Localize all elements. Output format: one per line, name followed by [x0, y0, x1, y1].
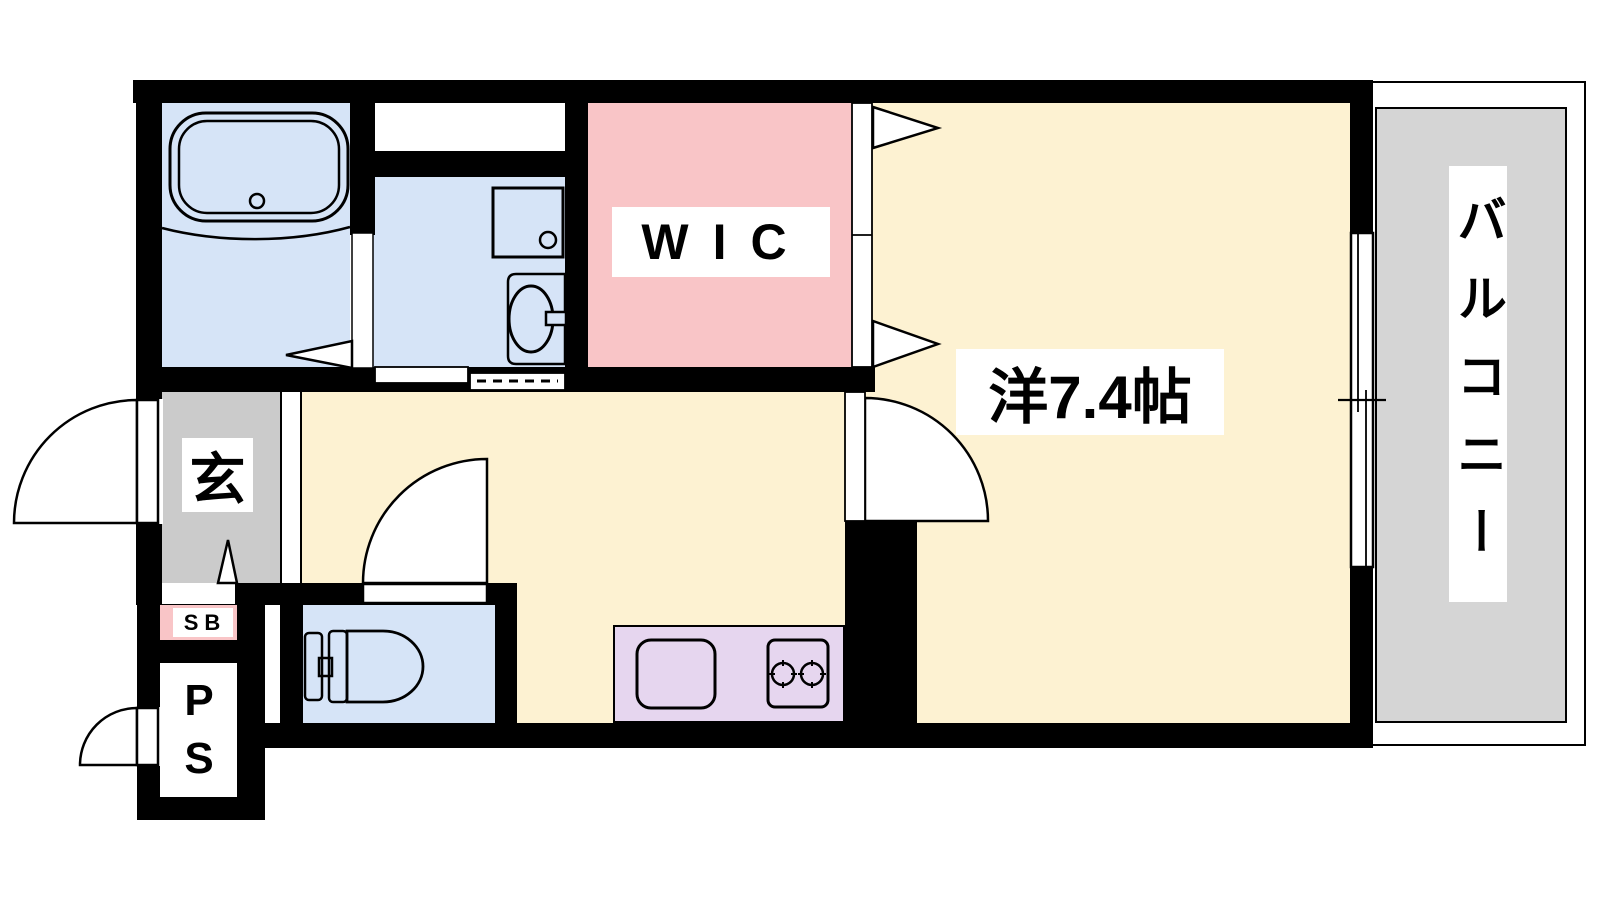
- vanity-faucet: [546, 312, 566, 325]
- balcony-label-text: バルコニー: [1450, 194, 1506, 584]
- washroom-sliding-door: [375, 367, 565, 390]
- bathroom-folding-door: [286, 341, 352, 368]
- entrance-label: 玄: [182, 438, 253, 512]
- toilet: [305, 631, 423, 702]
- washing-machine-pan: [493, 188, 563, 257]
- room-door-leaf: [845, 392, 865, 521]
- entrance-door-swing-arc: [14, 400, 137, 523]
- wic-folding-doors: [852, 103, 938, 367]
- ps-door-swing-arc: [80, 708, 137, 765]
- wic-door-triangle-top: [873, 107, 938, 148]
- balcony-window: [1338, 233, 1386, 567]
- main-room-label-text: 洋7.4帖: [988, 349, 1191, 436]
- balcony-label: バルコニー: [1449, 166, 1507, 602]
- toilet-door-leaf: [363, 584, 487, 603]
- bathtub: [162, 113, 350, 239]
- entrance-door: [14, 399, 163, 524]
- toilet-door: [363, 459, 487, 603]
- kitchen-fixtures: [637, 640, 828, 708]
- floorplan-canvas: WIC 洋7.4帖 バルコニー 玄 SB PS: [0, 0, 1600, 900]
- entrance-door-leaf: [137, 400, 158, 523]
- shoe-box-label: SB: [173, 608, 233, 637]
- shoe-box-label-text: SB: [184, 610, 227, 636]
- pipe-space-label: PS: [176, 666, 222, 794]
- toilet-bowl: [347, 631, 423, 702]
- vanity-sink: [508, 274, 566, 364]
- sliding-door-panel-left: [375, 367, 468, 383]
- wic-label-text: WIC: [641, 213, 810, 271]
- bathroom-door-opening: [352, 233, 373, 368]
- entrance-step-mark: [218, 540, 237, 583]
- main-room-label: 洋7.4帖: [956, 349, 1224, 435]
- wic-label: WIC: [612, 207, 830, 277]
- bathtub-apron-curve: [162, 227, 350, 239]
- ps-door-leaf: [137, 708, 158, 765]
- pipe-space-door: [80, 707, 163, 766]
- bathtub-inner: [179, 121, 339, 213]
- stove-burner-right: [801, 663, 823, 685]
- pipe-space-label-text: PS: [176, 672, 222, 788]
- bathtub-drain: [250, 194, 264, 208]
- toilet-door-swing-arc: [363, 459, 487, 583]
- entrance-label-text: 玄: [190, 435, 246, 516]
- stove-burner-left: [772, 663, 794, 685]
- washer-pan-drain: [540, 232, 556, 248]
- kitchen-sink: [637, 640, 715, 708]
- wic-door-triangle-bottom: [873, 321, 938, 367]
- bathtub-outer: [170, 113, 348, 221]
